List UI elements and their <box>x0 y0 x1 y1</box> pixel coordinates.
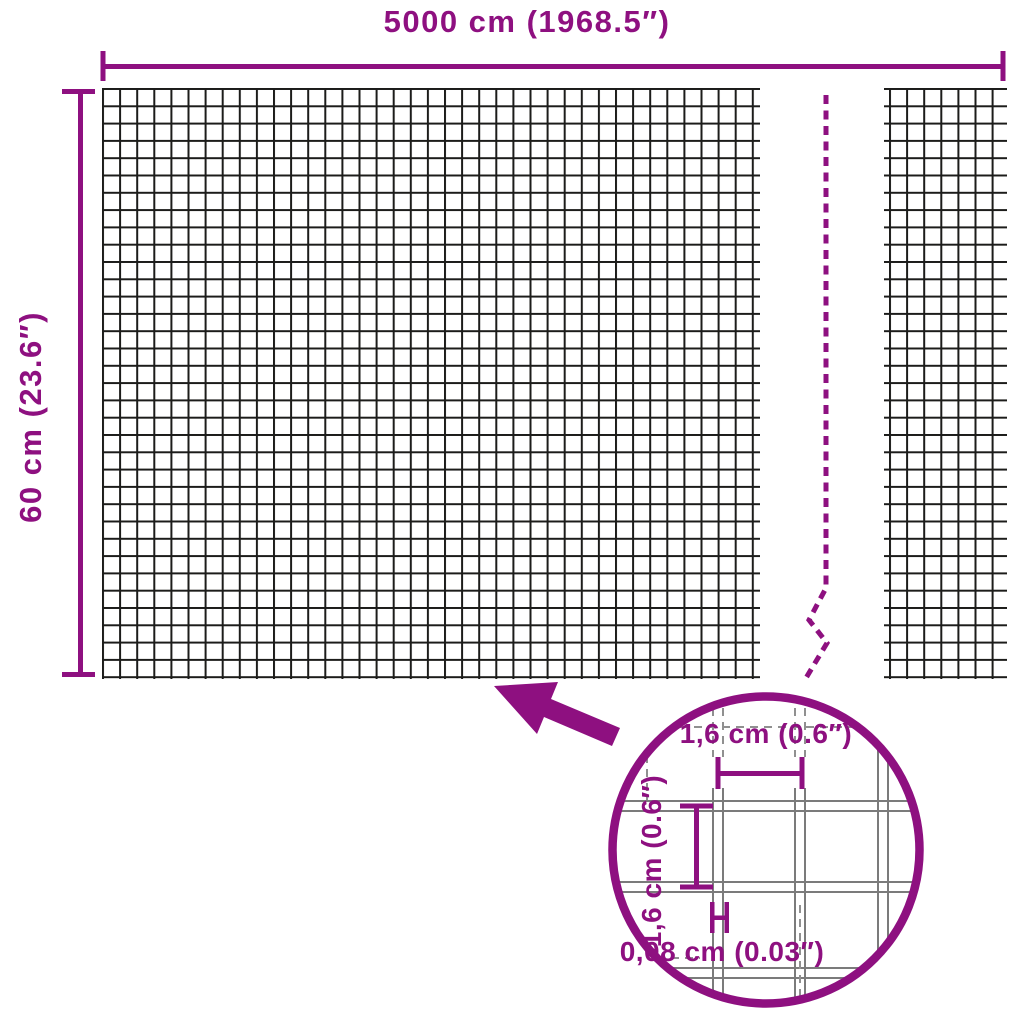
roll-width-label: 5000 cm (1968.5″) <box>384 4 671 40</box>
cell-width-label: 1,6 cm (0.6″) <box>680 718 852 750</box>
mesh-roll-grid-continued <box>884 88 1007 679</box>
wire-thickness-label: 0,08 cm (0.03″) <box>620 936 825 968</box>
product-dimension-diagram: 5000 cm (1968.5″) 60 cm (23.6″) 1,6 cm (… <box>0 0 1024 1024</box>
diagram-graphics <box>0 0 1024 1024</box>
roll-height-label: 60 cm (23.6″) <box>13 311 49 523</box>
break-line <box>806 95 827 678</box>
arrow-icon <box>494 682 620 746</box>
mesh-roll-grid <box>102 88 760 679</box>
roll-width-dimension-line <box>101 51 1006 81</box>
roll-height-dimension-line <box>62 89 95 677</box>
cell-height-label: 1,6 cm (0.6″) <box>636 775 668 947</box>
